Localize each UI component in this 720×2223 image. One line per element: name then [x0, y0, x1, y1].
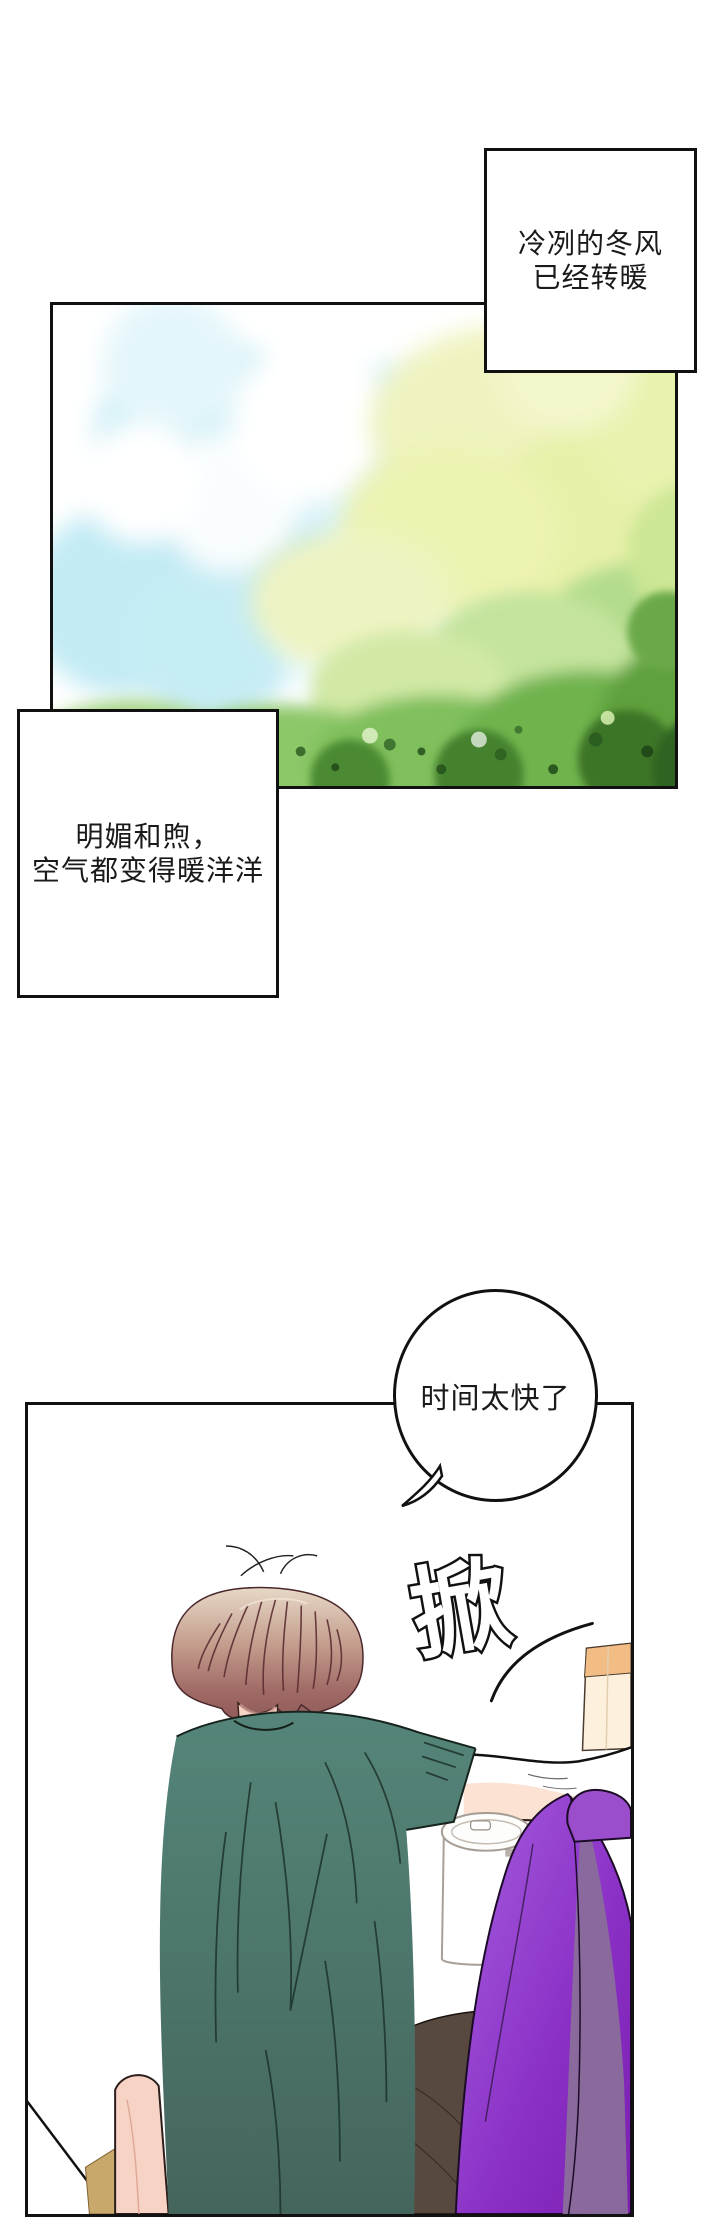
speech-bubble-tail	[396, 1462, 448, 1510]
blanket-grab	[567, 1790, 631, 1842]
speech-bubble-text: 时间太快了	[420, 1375, 570, 1417]
bedroom-panel: 掀	[25, 1402, 634, 2217]
sfx-text: 掀	[403, 1546, 520, 1673]
comic-page: 冷冽的冬风 已经转暖 明媚和煦， 空气都变得暖洋洋	[0, 0, 720, 2223]
bedroom-illustration: 掀	[28, 1405, 631, 2214]
caption-box-top: 冷冽的冬风 已经转暖	[484, 148, 697, 373]
caption-line: 明媚和煦，	[75, 820, 220, 854]
caption-line: 空气都变得暖洋洋	[32, 854, 264, 888]
caption-box-left: 明媚和煦， 空气都变得暖洋洋	[17, 709, 279, 998]
side-table-box	[582, 1643, 631, 1750]
caption-line: 冷冽的冬风	[518, 227, 663, 261]
caption-line: 已经转暖	[532, 261, 648, 295]
